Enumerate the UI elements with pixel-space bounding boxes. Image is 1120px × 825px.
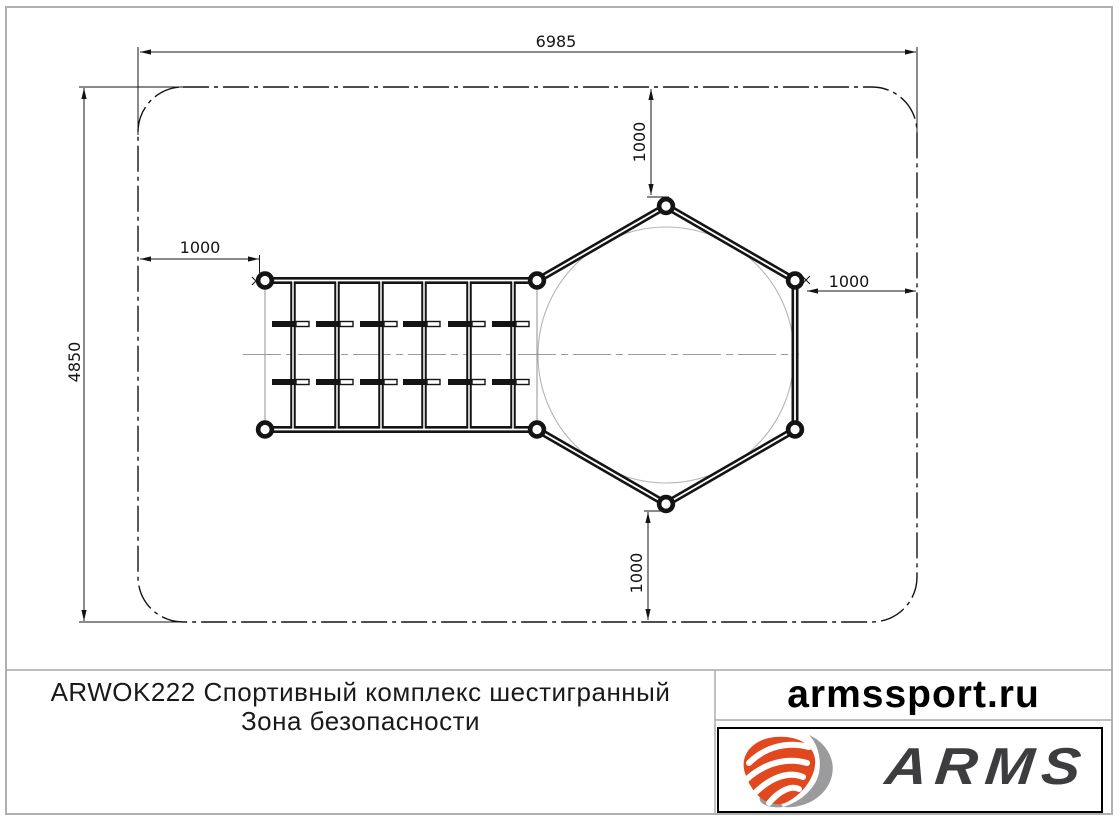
- dimension-offset-left: 1000: [140, 238, 259, 262]
- handhold-ticks: [272, 321, 529, 385]
- product-title-line: ARWOK222 Спортивный комплекс шестигранны…: [51, 678, 671, 707]
- drawing-title: ARWOK222 Спортивный комплекс шестигранны…: [6, 678, 715, 778]
- dim-width-label: 6985: [536, 32, 577, 51]
- dimension-offset-top: 1000: [630, 89, 654, 195]
- drawing-sheet: 6985 4850 1000 1000 1000 1000: [0, 0, 1120, 825]
- zone-title-line: Зона безопасности: [241, 707, 480, 736]
- dimension-width: 6985: [140, 32, 916, 55]
- dim-offset-top-label: 1000: [630, 122, 649, 163]
- dimension-offset-right: 1000: [807, 272, 916, 294]
- dimension-height: 4850: [65, 88, 87, 621]
- dim-offset-right-label: 1000: [829, 272, 870, 291]
- arms-shield-swoosh-icon: [731, 733, 843, 811]
- construction-lines: [243, 227, 799, 483]
- brand-logo-box: ARMS: [717, 727, 1103, 813]
- brand-wordmark: ARMS: [844, 737, 1120, 797]
- website-cell: armssport.ru: [715, 670, 1112, 720]
- extension-lines: [79, 47, 917, 622]
- website-text: armssport.ru: [787, 673, 1040, 717]
- dim-height-label: 4850: [65, 342, 84, 383]
- dim-offset-bottom-label: 1000: [627, 553, 646, 594]
- dimension-offset-bottom: 1000: [627, 512, 651, 620]
- dim-offset-left-label: 1000: [180, 238, 221, 257]
